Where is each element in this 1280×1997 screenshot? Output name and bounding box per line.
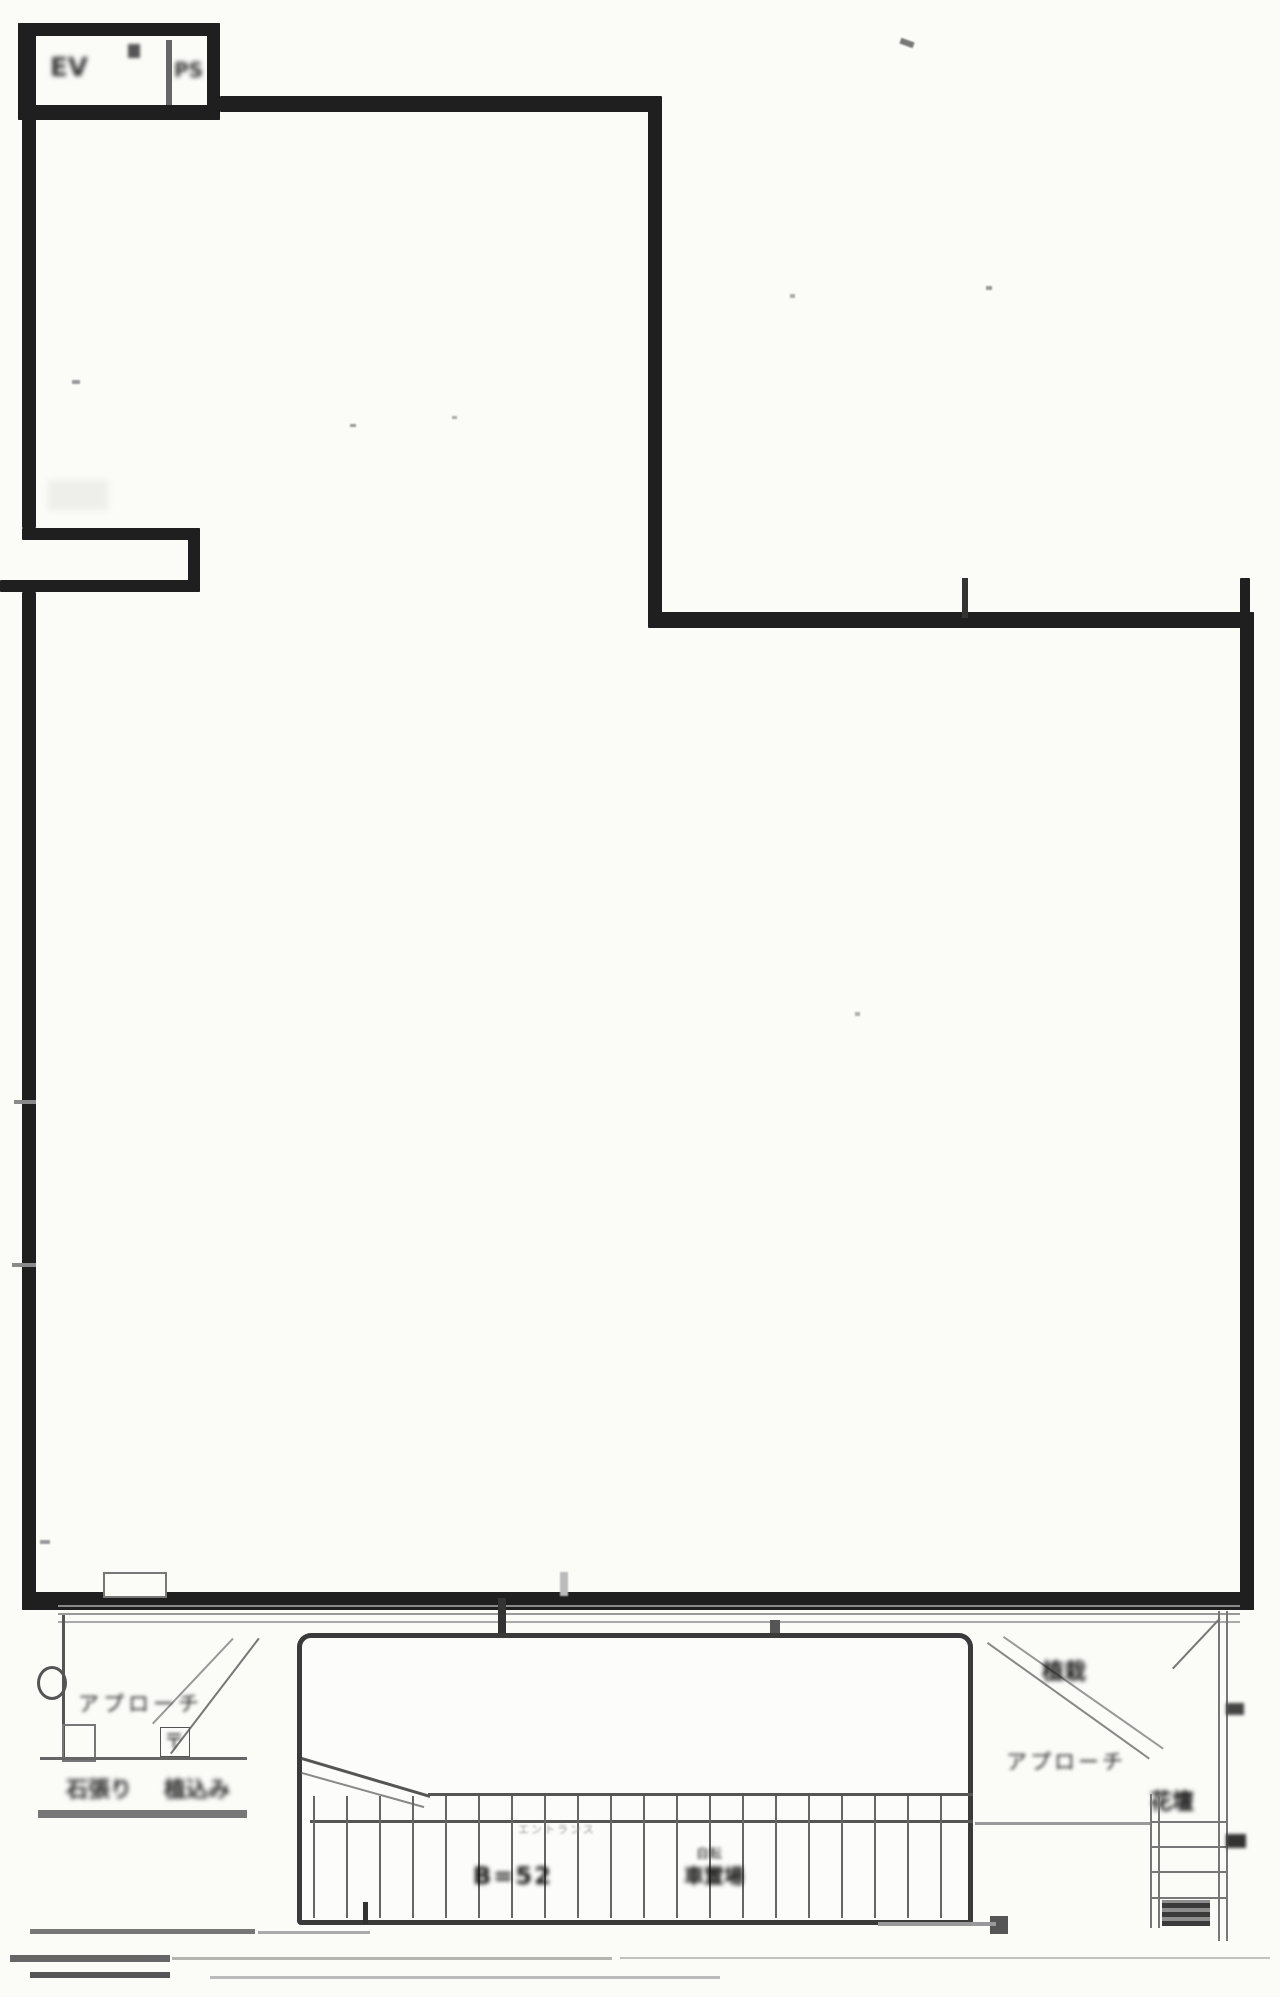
left-planting-label: 植込み (164, 1780, 230, 1802)
flower-bed-label: 花壇 (1150, 1792, 1194, 1814)
right-stair-rail (1158, 1794, 1160, 1928)
property-line (10, 1955, 170, 1962)
notch-wall-top (22, 528, 200, 540)
tree-circle-symbol (37, 1666, 67, 1700)
right-stair-hatched-landing (1162, 1900, 1210, 1926)
stair-tread-line (445, 1796, 447, 1918)
outer-wall-bottom (22, 1592, 1254, 1610)
scan-speck (899, 38, 914, 48)
scan-speck (40, 1540, 50, 1544)
outer-wall-step-vertical (648, 96, 662, 620)
right-stair-rung (1150, 1871, 1228, 1873)
stair-tread-line (676, 1796, 678, 1918)
ground-line (258, 1931, 370, 1934)
left-marker-glyph: 〒 (164, 1731, 184, 1751)
corner-brace-line (1172, 1618, 1221, 1670)
left-yard-line (40, 1757, 247, 1760)
glazing-line (58, 1621, 1240, 1623)
outer-wall-top (220, 96, 660, 112)
right-stair-rail (1226, 1611, 1228, 1941)
property-line (172, 1957, 612, 1960)
stair-tread-line (346, 1796, 348, 1918)
notch-wall-bottom (0, 580, 200, 592)
annex-wall-top (18, 23, 220, 36)
stair-tread-line (643, 1796, 645, 1918)
ground-line (878, 1922, 996, 1926)
stair-tread-line (775, 1796, 777, 1918)
left-wall-dim-tick (14, 1100, 36, 1104)
planting-label: 植栽 (1042, 1662, 1086, 1684)
stair-tread-line (742, 1796, 744, 1918)
annex-right-label: PS (174, 60, 203, 80)
stair-tread-line (940, 1796, 942, 1918)
floor-plan-scan: EV PS アプローチ 〒 石張り 植込み (0, 0, 1280, 1997)
scan-speck (855, 1012, 860, 1016)
annex-top-mark (128, 44, 140, 58)
stair-tread-line (808, 1796, 810, 1918)
right-stair-rung (1150, 1897, 1228, 1899)
scan-speck (350, 424, 356, 427)
right-rail-tick (1226, 1834, 1246, 1848)
scan-smudge (48, 480, 108, 510)
stair-tread-line (379, 1796, 381, 1918)
entrance-note-label: エントランス (518, 1824, 596, 1835)
scan-speck (790, 294, 795, 298)
stair-tread-line (577, 1796, 579, 1918)
stair-tread-line (841, 1796, 843, 1918)
right-yard-line (975, 1822, 1150, 1825)
scan-speck (72, 380, 80, 384)
property-line (210, 1976, 720, 1979)
bike-parking-label-line2: 車置場 (684, 1866, 744, 1886)
stair-tread-line (511, 1796, 513, 1918)
stair-upper-edge (428, 1793, 973, 1796)
canopy-bottom-tick (363, 1902, 368, 1924)
glazing-mullion (498, 1598, 506, 1638)
left-paving-label: 石張り (66, 1780, 132, 1802)
approach-slope-line (1003, 1636, 1164, 1749)
approach-right-label: アプローチ (1006, 1752, 1126, 1773)
glazing-line (58, 1613, 1240, 1615)
stair-dimension-label: B=52 (473, 1864, 553, 1888)
right-stair-rung (1150, 1846, 1228, 1848)
stair-tread-line (412, 1796, 414, 1918)
glazing-line (58, 1605, 1240, 1607)
stair-tread-line (874, 1796, 876, 1918)
right-rail-tick (1226, 1703, 1244, 1715)
stair-tread-line (313, 1796, 315, 1918)
left-wall-dim-tick (12, 1263, 36, 1267)
property-line-dark-segment (30, 1972, 170, 1978)
stair-tread-line (907, 1796, 909, 1918)
stair-tread-line (610, 1796, 612, 1918)
ground-line (30, 1929, 255, 1934)
entrance-canopy-outline (297, 1633, 973, 1925)
annex-wall-bottom (18, 105, 220, 120)
wall-smudge (560, 1572, 568, 1596)
right-stair-rung (1150, 1821, 1228, 1823)
property-line (620, 1957, 1270, 1959)
scan-speck (986, 286, 992, 290)
stair-tread-line (478, 1796, 480, 1918)
outer-wall-step-horizontal (648, 612, 1254, 628)
scan-speck (452, 416, 457, 419)
annex-divider (166, 40, 172, 105)
approach-left-label: アプローチ (78, 1694, 203, 1715)
outer-wall-right (1240, 612, 1254, 1610)
right-stair-rail (1150, 1794, 1152, 1928)
bike-parking-label-line1: 自転 (696, 1848, 722, 1861)
stair-tread-line (544, 1796, 546, 1918)
left-terrace-edge (38, 1810, 247, 1818)
right-corner-stub (1240, 578, 1250, 618)
right-stair-rail (1218, 1611, 1220, 1941)
bottom-wall-door-box (103, 1572, 167, 1598)
step-wall-stub (962, 578, 968, 618)
annex-left-label: EV (50, 55, 88, 81)
